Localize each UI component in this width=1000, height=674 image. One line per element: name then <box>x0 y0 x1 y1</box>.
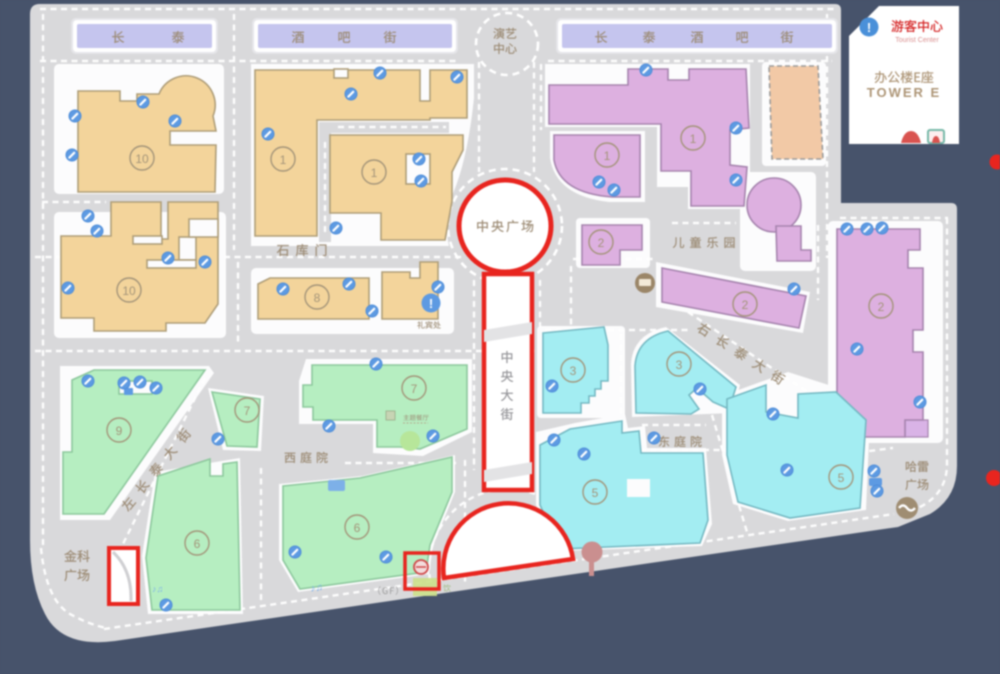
svg-text:10: 10 <box>122 284 136 298</box>
svg-text:10: 10 <box>135 152 149 166</box>
svg-text:TOWER E: TOWER E <box>867 85 941 100</box>
svg-text:2: 2 <box>878 300 885 314</box>
svg-text:♪♫: ♪♫ <box>310 582 324 595</box>
svg-text:!: ! <box>867 20 871 35</box>
svg-text:6: 6 <box>194 537 201 551</box>
svg-text:♪♫: ♪♫ <box>152 584 163 594</box>
svg-text:3: 3 <box>676 358 683 372</box>
svg-text:1: 1 <box>604 149 611 163</box>
svg-text:7: 7 <box>244 404 251 418</box>
svg-text:9: 9 <box>116 424 123 438</box>
svg-text:1: 1 <box>280 153 287 167</box>
svg-text:8: 8 <box>314 291 321 305</box>
svg-text:3: 3 <box>570 364 577 378</box>
svg-text:5: 5 <box>592 486 599 500</box>
svg-text:2: 2 <box>742 298 749 312</box>
svg-text:1: 1 <box>371 166 378 180</box>
svg-text:1: 1 <box>690 132 697 146</box>
svg-text:Tourist Center: Tourist Center <box>895 37 939 44</box>
svg-text:5: 5 <box>838 471 845 485</box>
svg-text:!: ! <box>429 296 433 311</box>
svg-text:6: 6 <box>354 521 361 535</box>
svg-text:2: 2 <box>598 236 605 250</box>
svg-text:7: 7 <box>411 382 418 396</box>
